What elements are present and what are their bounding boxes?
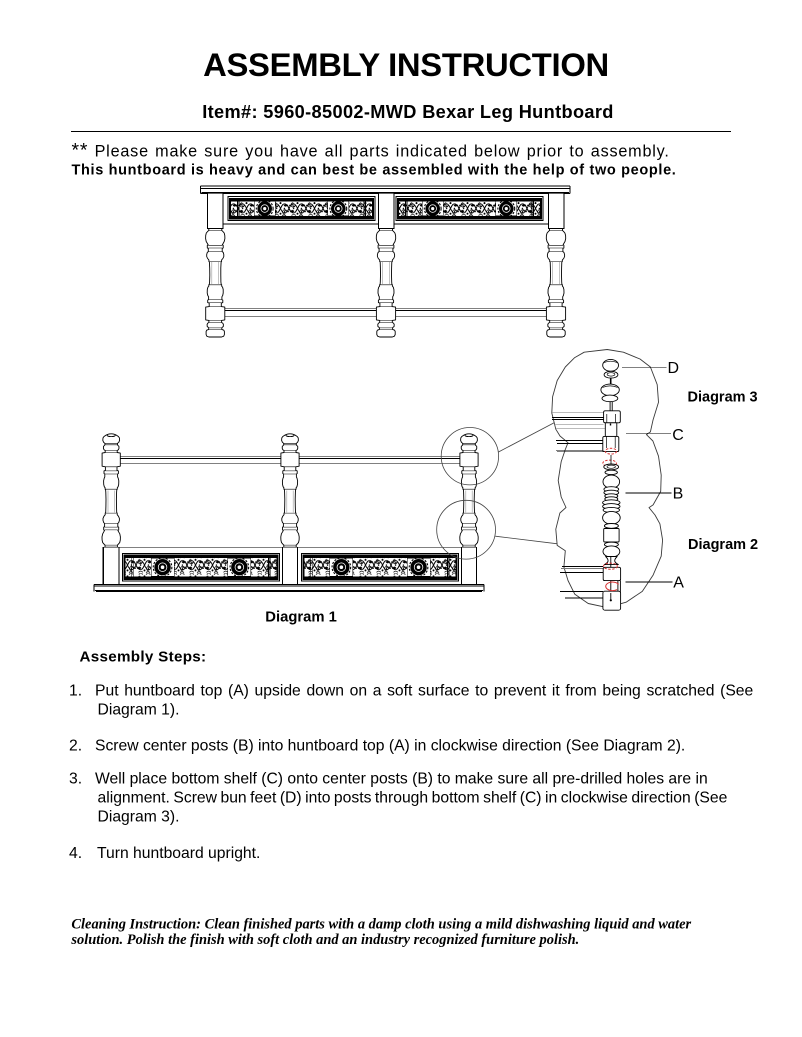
svg-text:B: B <box>673 486 684 503</box>
svg-text:Diagram 1: Diagram 1 <box>265 610 337 626</box>
svg-text:4.: 4. <box>69 845 82 862</box>
svg-text:1.: 1. <box>69 682 82 699</box>
svg-text:Assembly Steps:: Assembly Steps: <box>80 649 207 666</box>
svg-text:alignment. Screw bun feet (D): alignment. Screw bun feet (D) into posts… <box>98 790 728 807</box>
svg-text:2.: 2. <box>69 738 82 755</box>
svg-text:Diagram 2: Diagram 2 <box>688 537 758 553</box>
svg-text:Cleaning Instruction: Clean fi: Cleaning Instruction: Clean finished par… <box>71 917 691 933</box>
svg-text:C: C <box>672 427 684 444</box>
svg-text:A: A <box>673 575 684 592</box>
svg-text:Diagram 1).: Diagram 1). <box>98 702 180 719</box>
svg-text:Put huntboard top (A) upside d: Put huntboard top (A) upside down on a s… <box>95 682 754 699</box>
svg-text:solution. Polish the finish wi: solution. Polish the finish with soft cl… <box>70 932 579 948</box>
svg-text:Well place bottom shelf (C) on: Well place bottom shelf (C) onto center … <box>95 771 708 788</box>
svg-text:ASSEMBLY INSTRUCTION: ASSEMBLY INSTRUCTION <box>203 46 609 83</box>
svg-text:This huntboard is heavy and ca: This huntboard is heavy and can best be … <box>72 163 677 179</box>
svg-text:Diagram 3).: Diagram 3). <box>98 808 180 825</box>
svg-text:Screw center posts (B) into hu: Screw center posts (B) into huntboard to… <box>95 738 685 755</box>
svg-text:Turn huntboard upright.: Turn huntboard upright. <box>97 845 260 862</box>
svg-text:Item#: 5960-85002-MWD Bexar Le: Item#: 5960-85002-MWD Bexar Leg Huntboar… <box>202 102 614 122</box>
svg-text:** Please make sure you have a: ** Please make sure you have all parts i… <box>72 140 670 162</box>
svg-text:3.: 3. <box>69 771 82 788</box>
svg-text:D: D <box>668 360 680 377</box>
svg-text:Diagram 3: Diagram 3 <box>688 390 758 406</box>
